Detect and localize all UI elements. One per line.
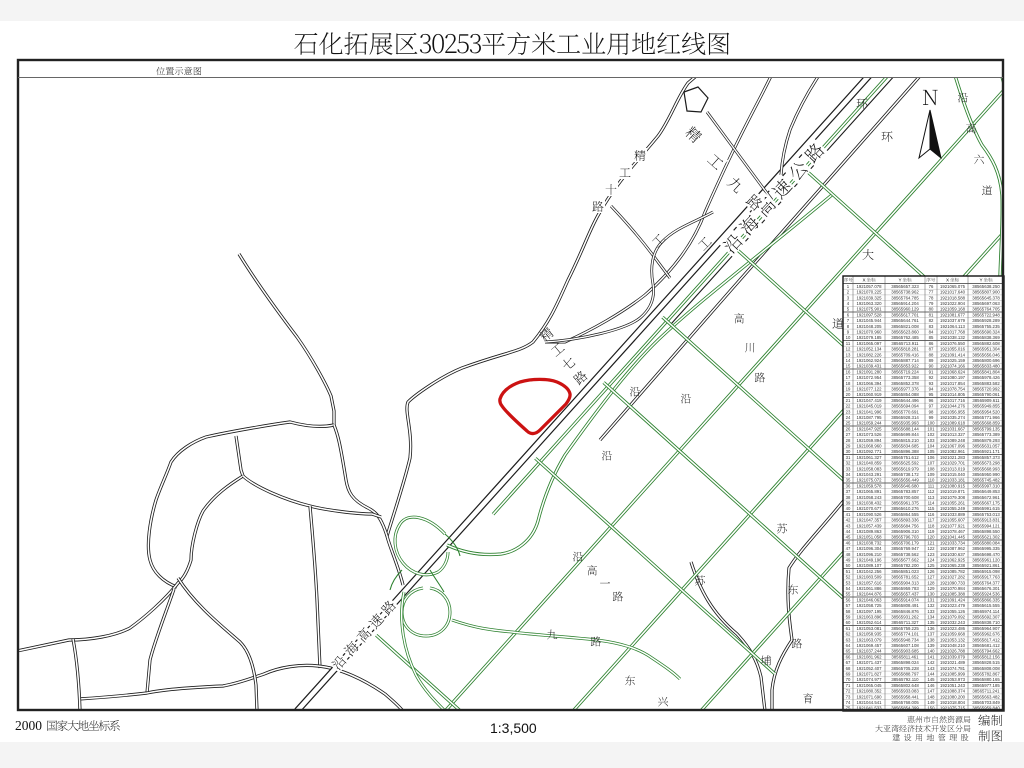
svg-text:38565759.225: 38565759.225 xyxy=(891,626,919,631)
svg-text:38565928.314: 38565928.314 xyxy=(891,415,919,420)
svg-text:1921039.079: 1921039.079 xyxy=(940,654,966,659)
svg-text:38565656.046: 38565656.046 xyxy=(972,352,1000,357)
svg-text:1921059.578: 1921059.578 xyxy=(856,483,882,488)
svg-text:38565931.262: 38565931.262 xyxy=(891,615,919,620)
svg-text:38565958.441: 38565958.441 xyxy=(891,694,919,699)
svg-text:102: 102 xyxy=(927,432,935,437)
svg-text:1921062.925: 1921062.925 xyxy=(940,558,966,563)
svg-text:108: 108 xyxy=(927,466,935,471)
svg-text:128: 128 xyxy=(927,580,935,585)
svg-text:38565841.804: 38565841.804 xyxy=(972,369,1000,374)
svg-text:1921052.614: 1921052.614 xyxy=(856,620,882,625)
svg-text:1921074.977: 1921074.977 xyxy=(856,677,882,682)
svg-text:1921081.962: 1921081.962 xyxy=(856,654,882,659)
svg-text:38565668.859: 38565668.859 xyxy=(972,421,1000,426)
svg-text:106: 106 xyxy=(927,455,935,460)
svg-text:1921068.960: 1921068.960 xyxy=(856,444,882,449)
svg-text:1921090.526: 1921090.526 xyxy=(856,512,882,517)
svg-text:64: 64 xyxy=(846,643,851,648)
svg-text:38565959.783: 38565959.783 xyxy=(891,586,919,591)
svg-text:1921085.388: 1921085.388 xyxy=(940,592,966,597)
svg-text:144: 144 xyxy=(927,672,935,677)
svg-text:1921025.159: 1921025.159 xyxy=(940,358,966,363)
svg-text:100: 100 xyxy=(927,421,935,426)
svg-text:1921088.374: 1921088.374 xyxy=(940,689,966,694)
svg-text:76: 76 xyxy=(929,284,934,289)
svg-text:1921018.588: 1921018.588 xyxy=(940,295,966,300)
svg-text:38565857.373: 38565857.373 xyxy=(972,455,1000,460)
svg-text:38565991.615: 38565991.615 xyxy=(972,506,1000,511)
svg-text:124: 124 xyxy=(927,558,935,563)
svg-text:1921067.096: 1921067.096 xyxy=(940,444,966,449)
svg-text:116: 116 xyxy=(928,512,935,517)
svg-text:114: 114 xyxy=(928,501,935,506)
svg-text:1921051.058: 1921051.058 xyxy=(856,535,882,540)
svg-text:38565866.335: 38565866.335 xyxy=(972,597,1000,602)
svg-text:38565771.966: 38565771.966 xyxy=(972,415,1000,420)
svg-text:38565738.962: 38565738.962 xyxy=(891,290,919,295)
svg-text:1921017.768: 1921017.768 xyxy=(940,330,966,335)
svg-text:147: 147 xyxy=(927,689,935,694)
svg-text:38565853.922: 38565853.922 xyxy=(891,364,919,369)
svg-text:38565677.662: 38565677.662 xyxy=(891,558,919,563)
svg-text:61: 61 xyxy=(846,626,851,631)
svg-text:1921080.200: 1921080.200 xyxy=(940,694,966,699)
svg-text:1921065.075: 1921065.075 xyxy=(940,284,966,289)
svg-text:1921060.919: 1921060.919 xyxy=(856,392,882,397)
svg-text:11: 11 xyxy=(846,341,851,346)
svg-text:38565631.057: 38565631.057 xyxy=(972,444,1000,449)
svg-text:38565692.307: 38565692.307 xyxy=(972,615,1000,620)
svg-text:38565690.324: 38565690.324 xyxy=(972,330,1000,335)
svg-text:29: 29 xyxy=(846,444,851,449)
svg-text:35: 35 xyxy=(846,478,851,483)
svg-text:113: 113 xyxy=(928,495,935,500)
svg-text:146: 146 xyxy=(927,683,935,688)
svg-text:50: 50 xyxy=(846,563,851,568)
svg-text:X: X xyxy=(862,278,865,283)
svg-text:1921045.944: 1921045.944 xyxy=(856,318,882,323)
svg-text:57: 57 xyxy=(846,603,851,608)
svg-text:39: 39 xyxy=(846,501,851,506)
svg-text:120: 120 xyxy=(927,535,935,540)
svg-text:140: 140 xyxy=(927,649,935,654)
svg-text:38565705.228: 38565705.228 xyxy=(891,666,919,671)
svg-text:1921089.863: 1921089.863 xyxy=(856,529,882,534)
svg-text:38565781.652: 38565781.652 xyxy=(891,575,919,580)
svg-text:19: 19 xyxy=(846,387,851,392)
svg-text:1921064.113: 1921064.113 xyxy=(940,324,965,329)
svg-text:38565994.121: 38565994.121 xyxy=(972,523,1000,528)
svg-text:42: 42 xyxy=(846,518,851,523)
svg-text:Y: Y xyxy=(898,278,901,283)
svg-text:1921055.261: 1921055.261 xyxy=(940,501,966,506)
svg-text:38565782.200: 38565782.200 xyxy=(891,563,919,568)
svg-text:51: 51 xyxy=(846,569,851,574)
svg-text:81: 81 xyxy=(929,312,934,317)
svg-text:80: 80 xyxy=(929,307,934,312)
svg-text:60: 60 xyxy=(846,620,851,625)
svg-text:38565657.437: 38565657.437 xyxy=(891,592,919,597)
svg-text:62: 62 xyxy=(846,632,851,637)
svg-text:1921065.891: 1921065.891 xyxy=(856,489,882,494)
svg-text:1921056.955: 1921056.955 xyxy=(940,409,966,414)
svg-text:1921048.210: 1921048.210 xyxy=(940,643,966,648)
svg-text:36: 36 xyxy=(846,483,851,488)
svg-text:1921026.788: 1921026.788 xyxy=(940,649,966,654)
svg-text:1921077.122: 1921077.122 xyxy=(856,387,882,392)
svg-text:112: 112 xyxy=(928,489,935,494)
svg-text:45: 45 xyxy=(846,535,851,540)
svg-text:1921091.280: 1921091.280 xyxy=(856,369,882,374)
svg-text:95: 95 xyxy=(929,392,934,397)
svg-text:15: 15 xyxy=(846,364,851,369)
svg-text:38565706.179: 38565706.179 xyxy=(891,540,919,545)
svg-text:38565834.685: 38565834.685 xyxy=(891,444,919,449)
svg-text:135: 135 xyxy=(927,620,935,625)
svg-text:38565807.900: 38565807.900 xyxy=(972,290,1000,295)
svg-text:38565625.592: 38565625.592 xyxy=(891,461,919,466)
svg-text:1921041.445: 1921041.445 xyxy=(940,535,966,540)
svg-text:149: 149 xyxy=(927,700,935,705)
svg-text:1921069.457: 1921069.457 xyxy=(856,643,882,648)
svg-text:70: 70 xyxy=(846,677,851,682)
svg-text:98: 98 xyxy=(929,409,934,414)
svg-text:136: 136 xyxy=(927,626,935,631)
svg-text:1921030.637: 1921030.637 xyxy=(940,552,966,557)
svg-text:130: 130 xyxy=(927,592,935,597)
svg-text:1921019.871: 1921019.871 xyxy=(940,489,966,494)
svg-text:38565684.756: 38565684.756 xyxy=(891,523,919,528)
svg-text:1921083.509: 1921083.509 xyxy=(856,575,882,580)
svg-text:126: 126 xyxy=(927,569,935,574)
svg-text:24: 24 xyxy=(846,415,851,420)
svg-text:94: 94 xyxy=(929,387,934,392)
svg-text:38565909.611: 38565909.611 xyxy=(972,398,1000,403)
svg-text:52: 52 xyxy=(846,575,851,580)
svg-text:38565773.358: 38565773.358 xyxy=(891,375,919,380)
svg-text:1921018.804: 1921018.804 xyxy=(940,700,966,705)
svg-text:93: 93 xyxy=(929,381,934,386)
svg-text:1921044.876: 1921044.876 xyxy=(856,592,882,597)
svg-text:38565711.327: 38565711.327 xyxy=(891,620,919,625)
svg-text:38565811.461: 38565811.461 xyxy=(891,654,919,659)
svg-text:1921087.962: 1921087.962 xyxy=(940,546,966,551)
svg-text:38565700.608: 38565700.608 xyxy=(891,495,919,500)
svg-text:72: 72 xyxy=(846,689,851,694)
svg-text:125: 125 xyxy=(927,563,935,568)
svg-text:105: 105 xyxy=(927,449,935,454)
svg-text:38565917.763: 38565917.763 xyxy=(972,575,1000,580)
svg-text:1921082.226: 1921082.226 xyxy=(856,352,882,357)
svg-text:38565709.416: 38565709.416 xyxy=(891,352,919,357)
svg-text:1921070.960: 1921070.960 xyxy=(856,330,882,335)
svg-text:13: 13 xyxy=(846,352,851,357)
svg-text:38565921.861: 38565921.861 xyxy=(972,563,1000,568)
svg-text:68: 68 xyxy=(846,666,851,671)
svg-text:38565800.696: 38565800.696 xyxy=(972,358,1000,363)
svg-text:38565904.313: 38565904.313 xyxy=(891,580,919,585)
svg-text:1921039.325: 1921039.325 xyxy=(856,295,882,300)
svg-text:1921075.901: 1921075.901 xyxy=(856,307,882,312)
svg-text:38565913.831: 38565913.831 xyxy=(972,518,1000,523)
svg-text:1921055.016: 1921055.016 xyxy=(940,347,966,352)
svg-text:1921091.424: 1921091.424 xyxy=(940,597,966,602)
svg-text:38565880.084: 38565880.084 xyxy=(972,540,1000,545)
svg-text:1921055.249: 1921055.249 xyxy=(940,506,966,511)
svg-text:1921085.782: 1921085.782 xyxy=(940,569,966,574)
svg-text:38565722.948: 38565722.948 xyxy=(972,312,1000,317)
svg-text:38565699.844: 38565699.844 xyxy=(891,432,919,437)
svg-text:1921057.078: 1921057.078 xyxy=(856,284,882,289)
svg-text:38565915.098: 38565915.098 xyxy=(972,569,1000,574)
svg-text:115: 115 xyxy=(928,506,935,511)
svg-text:1921053.973: 1921053.973 xyxy=(940,677,966,682)
svg-text:107: 107 xyxy=(927,461,935,466)
svg-text:33: 33 xyxy=(846,466,851,471)
svg-text:34: 34 xyxy=(846,472,851,477)
svg-text:1921097.528: 1921097.528 xyxy=(856,312,882,317)
svg-text:1921080.352: 1921080.352 xyxy=(856,689,882,694)
svg-text:1921013.327: 1921013.327 xyxy=(940,432,966,437)
svg-text:103: 103 xyxy=(927,438,935,443)
svg-text:38565977.376: 38565977.376 xyxy=(891,387,919,392)
svg-text:38565818.281: 38565818.281 xyxy=(891,347,919,352)
svg-text:38565644.496: 38565644.496 xyxy=(891,398,919,403)
svg-text:20: 20 xyxy=(846,392,851,397)
svg-text:47: 47 xyxy=(846,546,851,551)
svg-text:1921090.733: 1921090.733 xyxy=(940,580,966,585)
svg-text:1921076.550: 1921076.550 xyxy=(940,341,966,346)
svg-text:38565738.172: 38565738.172 xyxy=(891,472,919,477)
svg-text:1921071.690: 1921071.690 xyxy=(856,694,882,699)
svg-text:1921073.526: 1921073.526 xyxy=(856,432,882,437)
svg-text:53: 53 xyxy=(846,580,851,585)
svg-text:32: 32 xyxy=(846,461,851,466)
svg-text:55: 55 xyxy=(846,592,851,597)
svg-text:38565698.470: 38565698.470 xyxy=(972,552,1000,557)
svg-text:38565851.023: 38565851.023 xyxy=(891,569,919,574)
svg-text:63: 63 xyxy=(846,637,851,642)
svg-text:58: 58 xyxy=(846,609,851,614)
svg-text:38565676.301: 38565676.301 xyxy=(972,586,1000,591)
svg-text:1921037.679: 1921037.679 xyxy=(940,318,966,323)
svg-text:38565896.388: 38565896.388 xyxy=(891,449,919,454)
svg-text:38565667.175: 38565667.175 xyxy=(972,501,1000,506)
svg-text:38565893.336: 38565893.336 xyxy=(891,518,919,523)
svg-text:2000: 2000 xyxy=(15,718,42,733)
svg-text:1921089.248: 1921089.248 xyxy=(940,438,966,443)
svg-text:1:3,500: 1:3,500 xyxy=(490,720,537,736)
svg-text:38565769.947: 38565769.947 xyxy=(891,546,919,551)
svg-text:49: 49 xyxy=(846,558,851,563)
svg-text:44: 44 xyxy=(846,529,851,534)
svg-text:38565764.705: 38565764.705 xyxy=(972,307,1000,312)
svg-text:38565615.555: 38565615.555 xyxy=(972,603,1000,608)
svg-text:1921045.019: 1921045.019 xyxy=(856,404,882,409)
svg-text:38565703.849: 38565703.849 xyxy=(972,700,1000,705)
svg-text:1921046.063: 1921046.063 xyxy=(856,597,882,602)
svg-text:38565738.562: 38565738.562 xyxy=(891,552,919,557)
svg-text:38565790.061: 38565790.061 xyxy=(972,392,1000,397)
svg-text:38565852.378: 38565852.378 xyxy=(891,381,919,386)
svg-text:1921033.181: 1921033.181 xyxy=(940,478,966,483)
svg-text:1921043.291: 1921043.291 xyxy=(856,472,882,477)
svg-text:1921053.132: 1921053.132 xyxy=(940,637,966,642)
svg-text:87: 87 xyxy=(929,347,934,352)
svg-text:27: 27 xyxy=(846,432,851,437)
svg-text:38565799.135: 38565799.135 xyxy=(972,426,1000,431)
svg-text:38565906.310: 38565906.310 xyxy=(891,529,919,534)
svg-text:38565802.648: 38565802.648 xyxy=(891,683,919,688)
svg-text:38565719.224: 38565719.224 xyxy=(891,369,919,374)
svg-text:38565888.797: 38565888.797 xyxy=(891,672,919,677)
svg-text:123: 123 xyxy=(927,552,935,557)
svg-text:1921078.754: 1921078.754 xyxy=(940,387,966,392)
svg-text:38565812.156: 38565812.156 xyxy=(972,654,1000,659)
svg-text:1921015.040: 1921015.040 xyxy=(940,472,966,477)
svg-text:38565713.911: 38565713.911 xyxy=(891,341,919,346)
svg-text:38565997.310: 38565997.310 xyxy=(972,483,1000,488)
svg-text:1921023.486: 1921023.486 xyxy=(940,626,966,631)
svg-text:1921058.935: 1921058.935 xyxy=(856,632,882,637)
svg-text:38565882.608: 38565882.608 xyxy=(972,341,1000,346)
svg-text:38565774.101: 38565774.101 xyxy=(891,632,919,637)
svg-text:109: 109 xyxy=(927,472,935,477)
svg-text:26: 26 xyxy=(846,426,851,431)
svg-text:1921061.327: 1921061.327 xyxy=(856,455,882,460)
svg-text:38565808.008: 38565808.008 xyxy=(972,666,1000,671)
svg-text:38565673.298: 38565673.298 xyxy=(972,461,1000,466)
svg-text:1921014.805: 1921014.805 xyxy=(940,392,966,397)
svg-text:10: 10 xyxy=(846,335,851,340)
svg-text:38565854.088: 38565854.088 xyxy=(891,392,919,397)
svg-text:38565995.335: 38565995.335 xyxy=(972,546,1000,551)
svg-text:1921063.320: 1921063.320 xyxy=(856,301,882,306)
svg-text:38565949.855: 38565949.855 xyxy=(972,404,1000,409)
svg-text:38565838.710: 38565838.710 xyxy=(972,620,1000,625)
svg-text:137: 137 xyxy=(927,632,935,637)
svg-text:1921053.081: 1921053.081 xyxy=(856,626,882,631)
svg-text:38565697.063: 38565697.063 xyxy=(972,301,1000,306)
svg-text:38565924.536: 38565924.536 xyxy=(972,592,1000,597)
svg-text:1921096.304: 1921096.304 xyxy=(856,546,882,551)
svg-text:1921017.640: 1921017.640 xyxy=(940,290,966,295)
svg-text:118: 118 xyxy=(928,523,935,528)
svg-text:38565751.612: 38565751.612 xyxy=(891,455,919,460)
svg-text:139: 139 xyxy=(927,643,935,648)
svg-text:148: 148 xyxy=(927,694,935,699)
svg-text:38565950.990: 38565950.990 xyxy=(972,472,1000,477)
svg-text:1921048.205: 1921048.205 xyxy=(856,324,882,329)
svg-text:28: 28 xyxy=(846,438,851,443)
svg-text:1921047.419: 1921047.419 xyxy=(856,398,882,403)
svg-text:38565898.550: 38565898.550 xyxy=(972,529,1000,534)
svg-text:1921092.771: 1921092.771 xyxy=(856,449,882,454)
svg-text:40: 40 xyxy=(846,506,851,511)
svg-text:1921058.725: 1921058.725 xyxy=(856,603,882,608)
svg-text:46: 46 xyxy=(846,540,851,545)
svg-text:1921035.274: 1921035.274 xyxy=(940,415,966,420)
svg-text:38565764.377: 38565764.377 xyxy=(972,580,1000,585)
svg-text:121: 121 xyxy=(927,540,935,545)
svg-text:38: 38 xyxy=(846,495,851,500)
svg-text:38565610.276: 38565610.276 xyxy=(891,506,919,511)
svg-text:17: 17 xyxy=(846,375,851,380)
svg-text:1921052.407: 1921052.407 xyxy=(856,666,882,671)
svg-text:1921089.107: 1921089.107 xyxy=(856,563,882,568)
svg-text:1921044.541: 1921044.541 xyxy=(856,700,882,705)
svg-text:14: 14 xyxy=(846,358,851,363)
svg-text:74: 74 xyxy=(846,700,851,705)
svg-text:X: X xyxy=(946,278,949,283)
svg-text:38565815.210: 38565815.210 xyxy=(891,438,919,443)
svg-text:21: 21 xyxy=(846,398,851,403)
svg-text:38565617.701: 38565617.701 xyxy=(891,312,919,317)
svg-text:1921057.439: 1921057.439 xyxy=(856,523,882,528)
svg-text:127: 127 xyxy=(927,575,935,580)
svg-text:38565978.426: 38565978.426 xyxy=(972,375,1000,380)
svg-text:117: 117 xyxy=(928,518,935,523)
svg-text:1921057.616: 1921057.616 xyxy=(856,580,882,585)
svg-text:67: 67 xyxy=(846,660,851,665)
svg-text:1921065.097: 1921065.097 xyxy=(856,341,882,346)
svg-text:38565694.094: 38565694.094 xyxy=(891,404,919,409)
svg-text:1921033.734: 1921033.734 xyxy=(940,540,966,545)
svg-text:1921079.092: 1921079.092 xyxy=(940,615,966,620)
svg-text:1921085.999: 1921085.999 xyxy=(940,672,966,677)
svg-text:59: 59 xyxy=(846,615,851,620)
svg-text:38565948.734: 38565948.734 xyxy=(891,637,919,642)
svg-text:38565921.171: 38565921.171 xyxy=(972,449,1000,454)
svg-text:1921065.238: 1921065.238 xyxy=(940,563,966,568)
svg-text:38565792.110: 38565792.110 xyxy=(891,677,919,682)
svg-text:23: 23 xyxy=(846,409,851,414)
svg-text:38565764.785: 38565764.785 xyxy=(891,295,919,300)
svg-text:1921077.921: 1921077.921 xyxy=(940,523,966,528)
svg-text:1921044.276: 1921044.276 xyxy=(940,404,966,409)
svg-text:129: 129 xyxy=(927,586,935,591)
svg-text:38565638.250: 38565638.250 xyxy=(972,284,1000,289)
svg-text:78: 78 xyxy=(929,295,934,300)
svg-text:38565880.165: 38565880.165 xyxy=(972,677,1000,682)
svg-text:38565933.083: 38565933.083 xyxy=(891,689,919,694)
svg-text:38565755.235: 38565755.235 xyxy=(972,324,1000,329)
svg-text:Y: Y xyxy=(979,278,982,283)
svg-text:1921027.282: 1921027.282 xyxy=(940,575,966,580)
svg-text:38565762.485: 38565762.485 xyxy=(891,335,919,340)
svg-text:38565753.013: 38565753.013 xyxy=(972,512,1000,517)
svg-text:71: 71 xyxy=(846,683,851,688)
svg-text:1921059.668: 1921059.668 xyxy=(940,632,966,637)
svg-text:38565808.491: 38565808.491 xyxy=(891,603,919,608)
svg-text:141: 141 xyxy=(927,654,935,659)
svg-text:82: 82 xyxy=(929,318,934,323)
svg-text:1921063.896: 1921063.896 xyxy=(856,615,882,620)
svg-text:38565663.482: 38565663.482 xyxy=(972,694,1000,699)
svg-text:69: 69 xyxy=(846,672,851,677)
svg-text:1921071.827: 1921071.827 xyxy=(856,672,882,677)
svg-text:1921096.210: 1921096.210 xyxy=(856,552,882,557)
svg-text:1921040.859: 1921040.859 xyxy=(856,461,882,466)
svg-text:38565914.074: 38565914.074 xyxy=(891,597,919,602)
svg-text:1921032.243: 1921032.243 xyxy=(940,620,966,625)
svg-text:1921039.431: 1921039.431 xyxy=(856,364,882,369)
svg-text:1921078.467: 1921078.467 xyxy=(940,529,966,534)
svg-text:132: 132 xyxy=(927,603,935,608)
svg-text:38565846.876: 38565846.876 xyxy=(891,609,919,614)
svg-text:38565623.860: 38565623.860 xyxy=(891,330,919,335)
